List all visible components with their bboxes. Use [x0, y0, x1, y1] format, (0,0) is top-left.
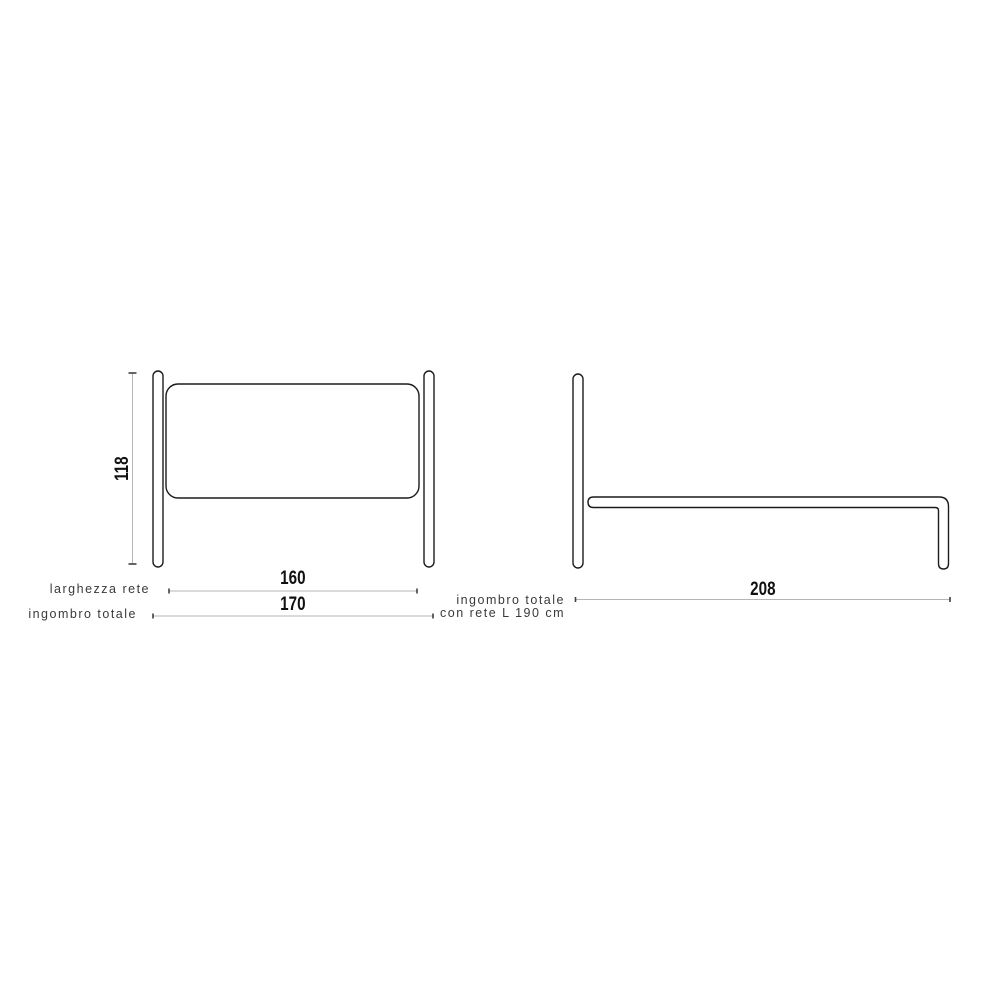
front-view — [153, 371, 434, 567]
total-width-dimension-value: 170 — [153, 595, 433, 615]
front-left-leg — [153, 371, 163, 567]
total-length-label-line1: ingombro totale — [456, 593, 565, 607]
side-rail-and-leg — [588, 497, 949, 569]
side-headboard-post — [573, 374, 583, 568]
bed-dimension-drawing: 118 160 170 208 larghezza rete ingombro … — [0, 0, 1000, 1000]
total-length-dimension-value: 208 — [575, 580, 950, 600]
height-dimension-value: 118 — [113, 439, 133, 499]
net-width-text: 160 — [280, 569, 305, 589]
height-dimension-text: 118 — [113, 457, 133, 482]
total-width-text: 170 — [280, 595, 305, 615]
total-length-text: 208 — [750, 580, 775, 600]
net-width-label: larghezza rete — [20, 583, 150, 597]
front-right-leg — [424, 371, 434, 567]
front-headboard — [166, 384, 419, 498]
net-width-dimension-value: 160 — [169, 569, 417, 589]
side-view — [573, 374, 949, 569]
drawing-svg — [0, 0, 1000, 1000]
total-length-label-line2: con rete L 190 cm — [440, 606, 565, 620]
total-width-label: ingombro totale — [20, 608, 137, 622]
total-length-label: ingombro totale con rete L 190 cm — [440, 594, 565, 621]
